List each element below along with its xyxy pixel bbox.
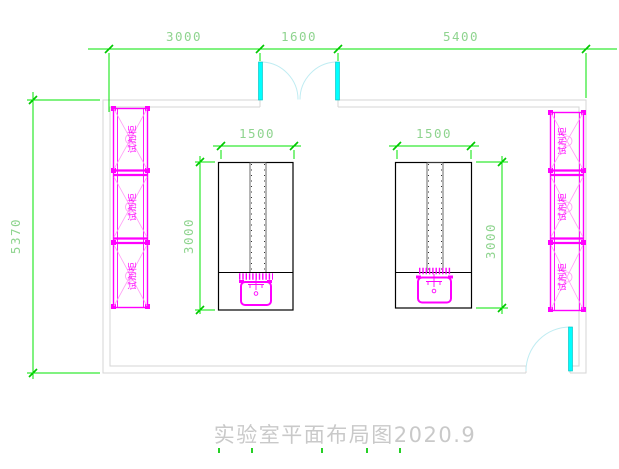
dim-label-bench-depth: 3000 [181, 218, 196, 254]
room-walls [103, 100, 586, 373]
dim-label-bench-depth: 3000 [483, 223, 498, 259]
drawing-title-block: 实验室平面布局图2020.9 [214, 423, 476, 453]
cabinet-cell: 试剂柜 [551, 245, 583, 309]
dim-label-5370: 5370 [8, 218, 23, 254]
cabinet-label: 试剂柜 [127, 193, 139, 222]
double-door [259, 62, 340, 100]
reagent-cabinets-right: 试剂柜 试剂柜 试剂柜 [548, 110, 586, 312]
dim-label-1600: 1600 [281, 29, 317, 44]
cabinet-label: 试剂柜 [557, 127, 569, 156]
cabinet-cell: 试剂柜 [114, 109, 147, 169]
dim-label-3000: 3000 [166, 29, 202, 44]
door-swing-arc [263, 62, 299, 100]
lab-bench-right [396, 163, 472, 309]
lab-bench-left [219, 163, 294, 311]
cabinet-cell: 试剂柜 [114, 177, 147, 237]
cabinet-label: 试剂柜 [557, 263, 569, 292]
door-leaf [569, 327, 573, 371]
single-door [526, 327, 573, 371]
cabinet-cell: 试剂柜 [551, 113, 583, 169]
dim-label-5400: 5400 [443, 29, 479, 44]
door-swing-arc [300, 62, 336, 100]
cad-drawing-viewport: 试剂柜 试剂柜 试剂柜 试剂柜 试 [0, 0, 619, 469]
door-leaf [336, 62, 340, 100]
cabinet-cell: 试剂柜 [114, 245, 147, 306]
door-swing-arc [526, 327, 570, 371]
reagent-cabinets-left: 试剂柜 试剂柜 试剂柜 [111, 106, 150, 309]
cabinet-label: 试剂柜 [127, 262, 139, 291]
dimension-left: 5370 [8, 92, 100, 379]
drawing-title: 实验室平面布局图2020.9 [214, 423, 476, 447]
door-leaf [259, 62, 263, 100]
cabinet-label: 试剂柜 [557, 193, 569, 222]
cabinet-cell: 试剂柜 [551, 177, 583, 237]
dim-label-bench-width: 1500 [239, 126, 275, 141]
dim-label-bench-width: 1500 [416, 126, 452, 141]
title-grip-ticks [219, 448, 400, 453]
floorplan-canvas: 试剂柜 试剂柜 试剂柜 试剂柜 试 [0, 0, 619, 469]
cabinet-label: 试剂柜 [127, 125, 139, 154]
